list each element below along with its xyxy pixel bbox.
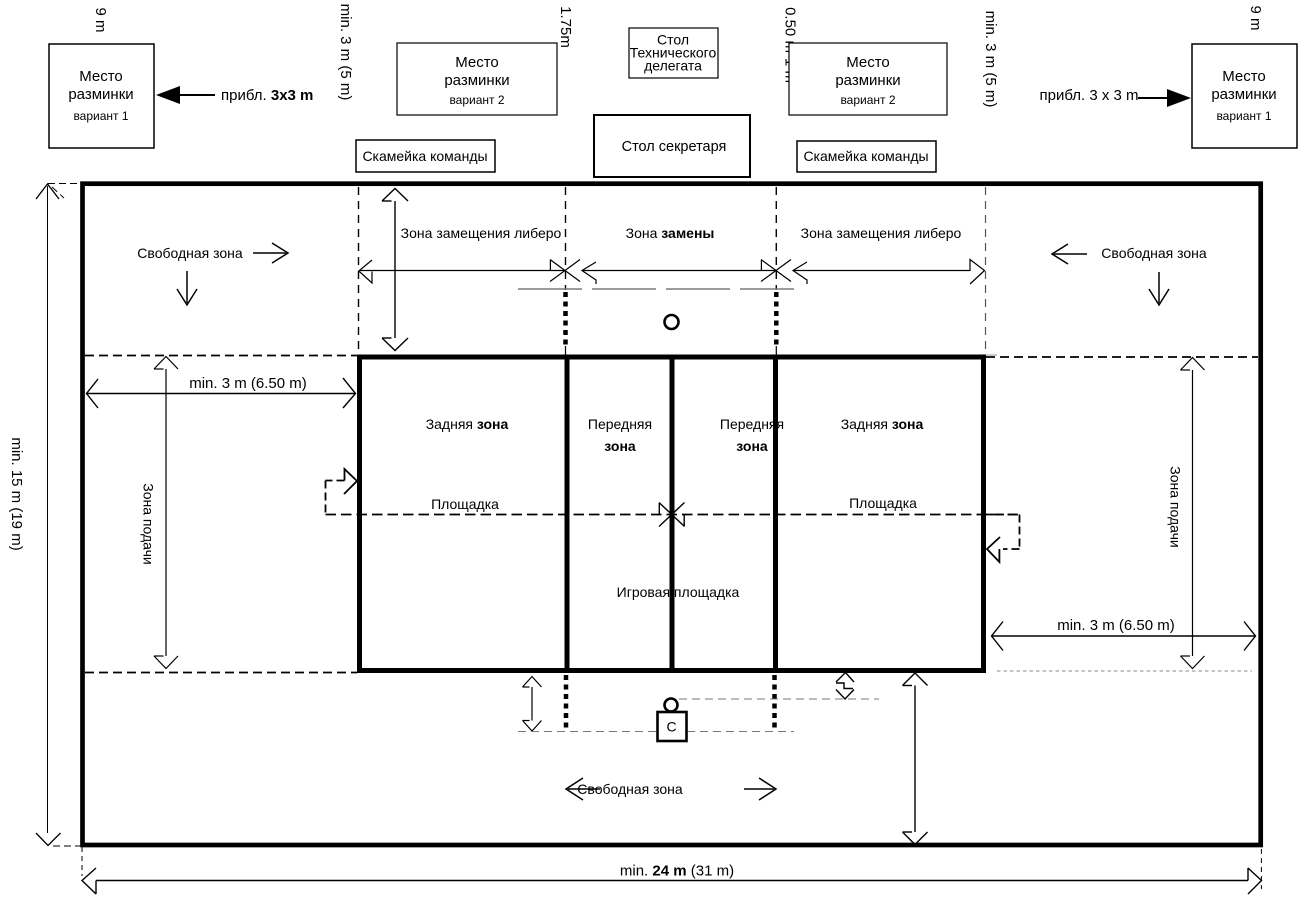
svg-text:Место: Место bbox=[455, 54, 499, 71]
svg-text:Задняя зона: Задняя зона bbox=[426, 416, 509, 432]
svg-text:разминки: разминки bbox=[1211, 86, 1276, 103]
svg-text:Место: Место bbox=[1222, 68, 1266, 85]
svg-text:min. 3 m (6.50 m): min. 3 m (6.50 m) bbox=[189, 375, 307, 392]
svg-text:1.75m: 1.75m bbox=[557, 6, 574, 48]
svg-text:min. 15 m (19 m): min. 15 m (19 m) bbox=[8, 437, 25, 550]
svg-text:Скамейка команды: Скамейка команды bbox=[362, 148, 487, 164]
svg-text:прибл. 3 x 3 m: прибл. 3 x 3 m bbox=[1039, 87, 1138, 104]
svg-text:Задняя зона: Задняя зона bbox=[841, 416, 924, 432]
svg-text:9 m: 9 m bbox=[92, 7, 109, 32]
svg-text:Зона замены: Зона замены bbox=[626, 225, 715, 241]
svg-text:разминки: разминки bbox=[835, 72, 900, 89]
svg-text:делегата: делегата bbox=[644, 58, 702, 74]
svg-text:вариант 1: вариант 1 bbox=[1216, 109, 1271, 123]
svg-text:Зона подачи: Зона подачи bbox=[1167, 466, 1183, 547]
svg-text:зона: зона bbox=[736, 438, 768, 454]
svg-text:min. 24 m (31 m): min. 24 m (31 m) bbox=[620, 863, 734, 880]
svg-text:Зона замещения либеро: Зона замещения либеро bbox=[801, 225, 962, 241]
svg-text:Передняя: Передняя bbox=[720, 416, 784, 432]
svg-text:Передняя: Передняя bbox=[588, 416, 652, 432]
svg-text:вариант 2: вариант 2 bbox=[840, 93, 895, 107]
svg-text:вариант 1: вариант 1 bbox=[73, 109, 128, 123]
svg-text:разминки: разминки bbox=[444, 72, 509, 89]
svg-text:min. 3 m (5 m): min. 3 m (5 m) bbox=[337, 4, 354, 101]
svg-text:Зона подачи: Зона подачи bbox=[140, 483, 156, 564]
svg-text:прибл. 3x3 m: прибл. 3x3 m bbox=[221, 87, 313, 104]
svg-text:Зона замещения либеро: Зона замещения либеро bbox=[401, 225, 562, 241]
svg-text:Свободная зона: Свободная зона bbox=[137, 245, 243, 261]
svg-text:зона: зона bbox=[604, 438, 636, 454]
svg-text:С: С bbox=[666, 719, 676, 735]
svg-text:Стол секретаря: Стол секретаря bbox=[622, 139, 727, 155]
svg-text:разминки: разминки bbox=[68, 86, 133, 103]
svg-text:Свободная зона: Свободная зона bbox=[1101, 245, 1207, 261]
svg-text:Место: Место bbox=[79, 68, 123, 85]
svg-text:min. 3 m (5 m): min. 3 m (5 m) bbox=[982, 11, 999, 108]
svg-text:Игровая площадка: Игровая площадка bbox=[617, 584, 740, 600]
svg-text:вариант 2: вариант 2 bbox=[449, 93, 504, 107]
svg-text:Скамейка команды: Скамейка команды bbox=[803, 148, 928, 164]
svg-text:min. 3 m (6.50 m): min. 3 m (6.50 m) bbox=[1057, 617, 1175, 634]
svg-text:Площадка: Площадка bbox=[431, 496, 499, 512]
svg-text:9 m: 9 m bbox=[1247, 5, 1264, 30]
svg-text:Место: Место bbox=[846, 54, 890, 71]
svg-text:Площадка: Площадка bbox=[849, 495, 917, 511]
